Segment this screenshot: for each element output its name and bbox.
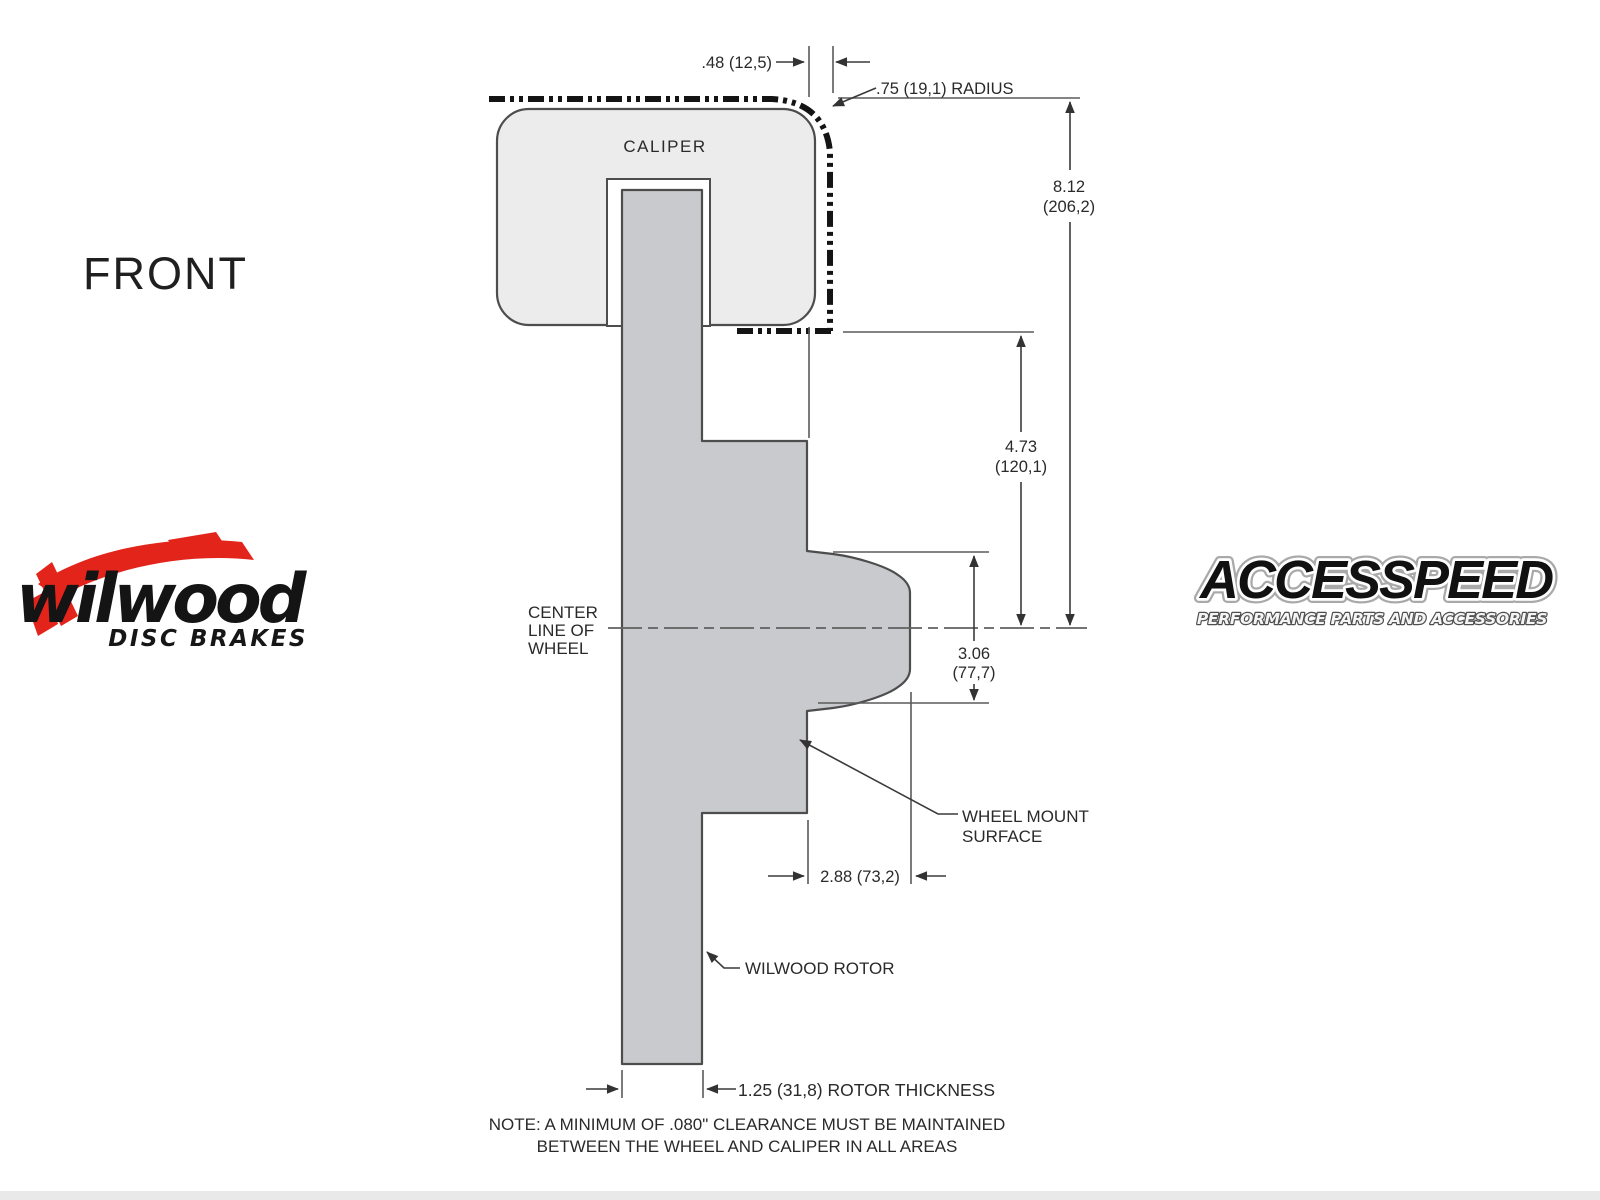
dim-radius-text: .75 (19,1) RADIUS — [876, 80, 1014, 98]
accesspeed-tagline: PERFORMANCE PARTS AND ACCESSORIES — [1197, 610, 1547, 628]
dim-top-offset-text: .48 (12,5) — [701, 54, 772, 72]
caliper-label: CALIPER — [623, 137, 706, 156]
dim-flange-mm: (77,7) — [952, 664, 995, 682]
centerline-label-3: WHEEL — [528, 639, 588, 658]
rotor-label: WILWOOD ROTOR — [745, 959, 895, 978]
dim-flange-in: 3.06 — [958, 645, 990, 663]
footer-bar — [0, 1191, 1600, 1200]
dim-overall-height-in: 8.12 — [1053, 178, 1085, 196]
wilwood-tagline: DISC BRAKES — [108, 626, 308, 652]
rotor-callout-leader — [707, 952, 740, 968]
centerline-label-2: LINE OF — [528, 621, 594, 640]
svg-text:ACCESSPEED: ACCESSPEED — [1198, 550, 1553, 610]
note-line-1: NOTE: A MINIMUM OF .080" CLEARANCE MUST … — [489, 1115, 1005, 1134]
wheel-mount-label-1: WHEEL MOUNT — [962, 807, 1089, 826]
technical-drawing: FRONT CALIPER — [0, 0, 1600, 1200]
wilwood-logo: wilwood DISC BRAKES — [16, 532, 308, 652]
dim-rotor-thickness-text: 1.25 (31,8) ROTOR THICKNESS — [738, 1080, 995, 1100]
accesspeed-wordmark: ACCESSPEED ACCESSPEED ACCESSPEED — [1198, 550, 1553, 610]
wheel-mount-callout-leader — [800, 740, 958, 814]
clearance-note: NOTE: A MINIMUM OF .080" CLEARANCE MUST … — [489, 1115, 1005, 1156]
dim-radius-leader — [833, 88, 876, 106]
centerline-label-1: CENTER — [528, 603, 598, 622]
front-label: FRONT — [83, 248, 248, 299]
dim-caliper-centerline-mm: (120,1) — [995, 458, 1047, 476]
dim-mount-depth-text: 2.88 (73,2) — [820, 868, 900, 886]
dim-caliper-centerline-in: 4.73 — [1005, 438, 1037, 456]
page: FRONT CALIPER — [0, 0, 1600, 1200]
dim-overall-height-mm: (206,2) — [1043, 198, 1095, 216]
wheel-mount-label-2: SURFACE — [962, 827, 1042, 846]
note-line-2: BETWEEN THE WHEEL AND CALIPER IN ALL ARE… — [537, 1137, 958, 1156]
accesspeed-logo: ACCESSPEED ACCESSPEED ACCESSPEED PERFORM… — [1197, 550, 1553, 628]
